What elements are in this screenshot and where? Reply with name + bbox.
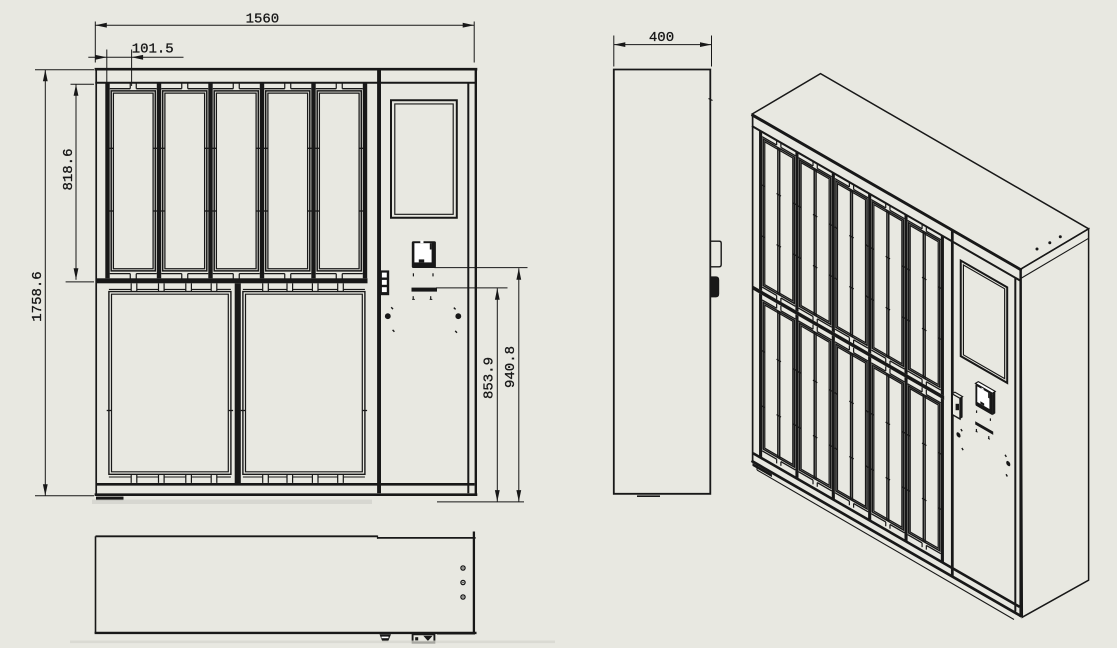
svg-text:853.9: 853.9 [482, 357, 498, 399]
svg-text:1758.6: 1758.6 [30, 271, 46, 321]
svg-text:818.6: 818.6 [61, 148, 77, 190]
svg-text:101.5: 101.5 [132, 42, 174, 58]
svg-text:940.8: 940.8 [503, 346, 519, 388]
svg-text:400: 400 [649, 30, 674, 46]
svg-text:1560: 1560 [246, 11, 280, 27]
